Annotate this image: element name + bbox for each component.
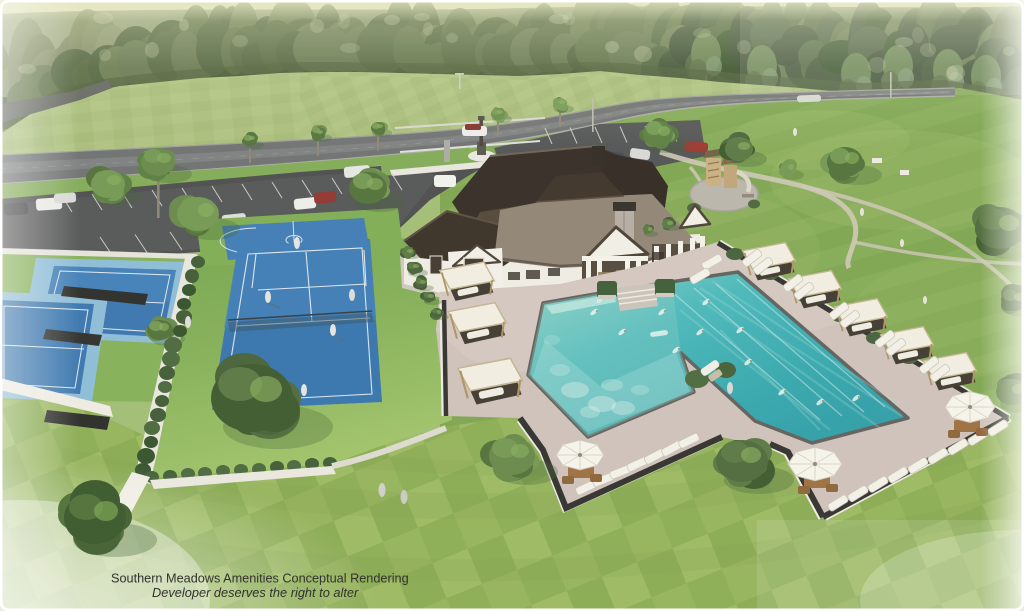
svg-text:Southern Meadows Amenities Con: Southern Meadows Amenities Conceptual Re… — [111, 572, 409, 586]
svg-text:Developer deserves the right t: Developer deserves the right to alter — [152, 585, 359, 600]
